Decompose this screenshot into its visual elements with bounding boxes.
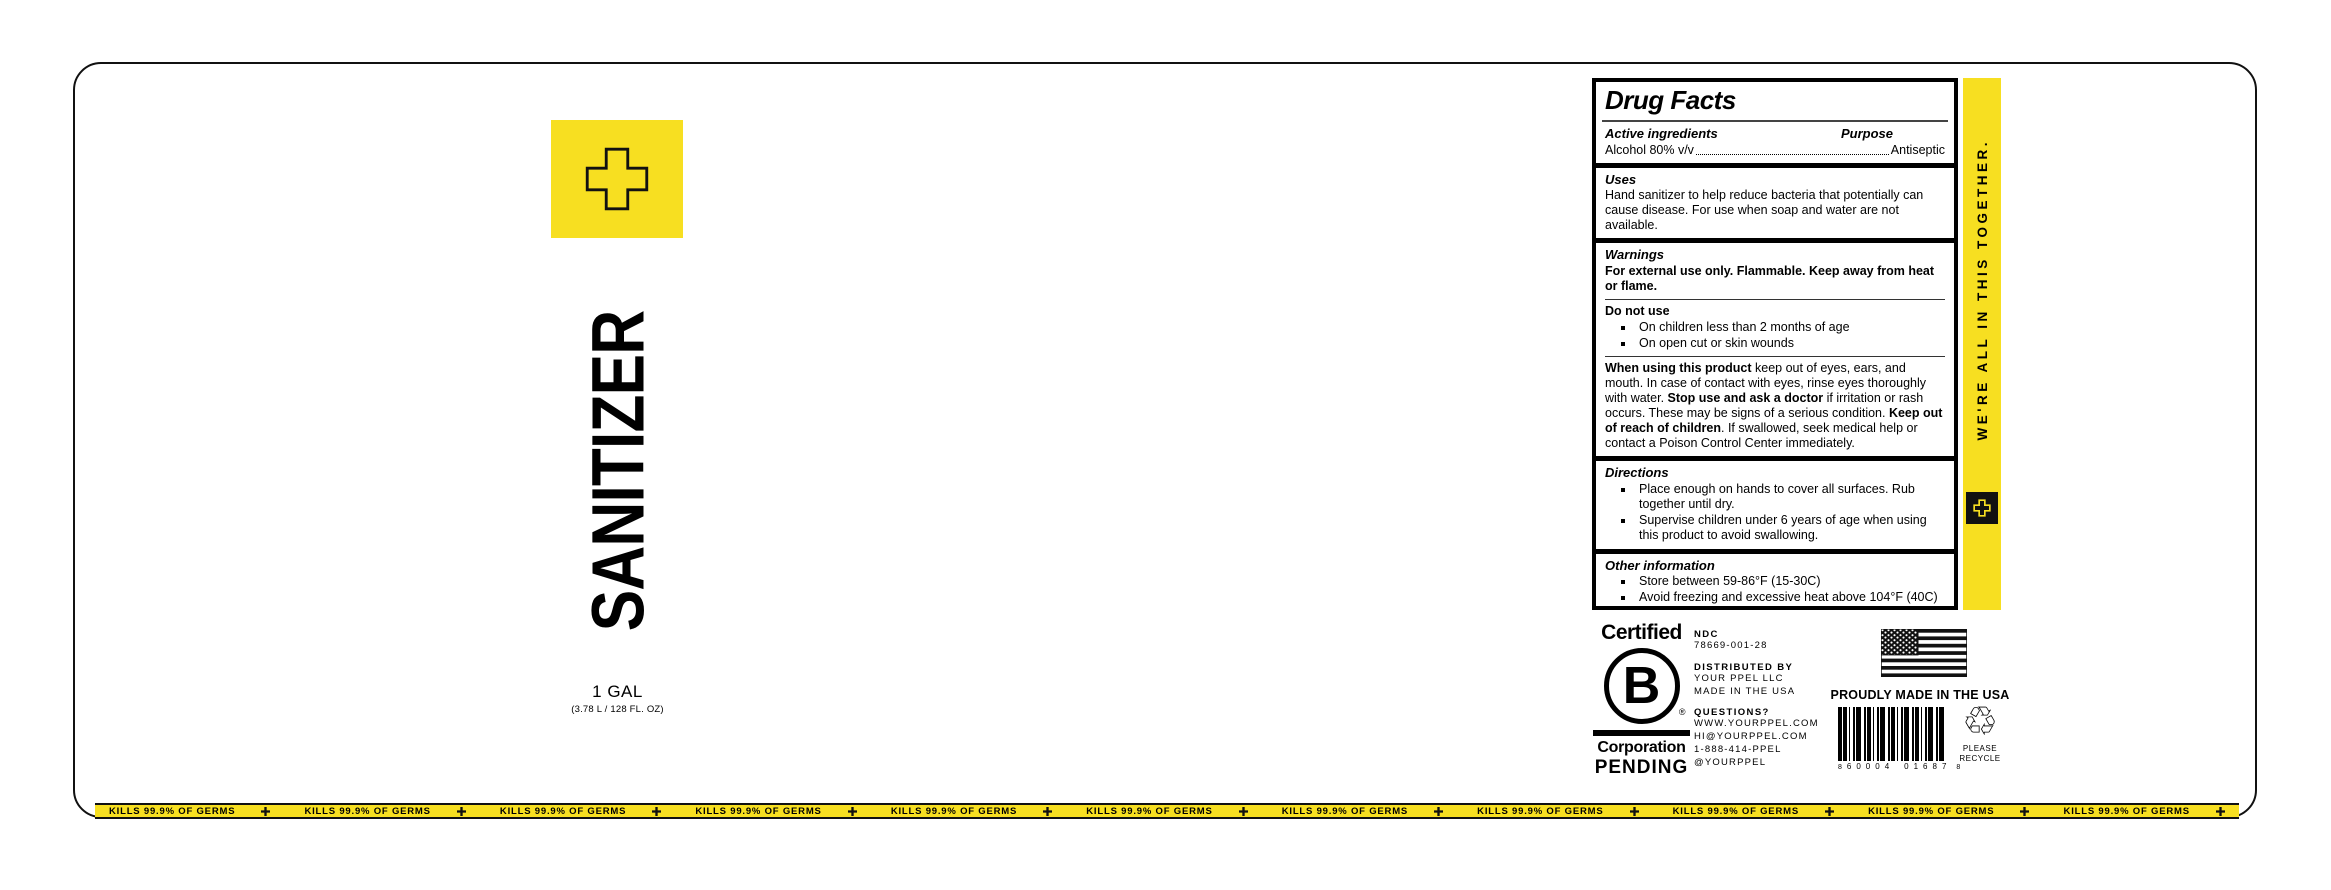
recycle-block: ♲ PLEASE RECYCLE: [1950, 702, 2010, 764]
size-volume: 1 GAL: [535, 682, 700, 702]
bcorp-b-letter: B: [1623, 660, 1661, 712]
list-item: On children less than 2 months of age: [1635, 320, 1945, 335]
medical-cross-icon: [579, 141, 655, 217]
plus-cross-icon: [261, 807, 270, 816]
when-using-text: When using this product keep out of eyes…: [1605, 361, 1945, 451]
plus-cross-icon: [1434, 807, 1443, 816]
barcode-group2: 01687: [1904, 762, 1951, 771]
size-info: 1 GAL (3.78 L / 128 FL. OZ): [535, 682, 700, 715]
germs-band-text: KILLS 99.9% OF GERMS: [891, 806, 1017, 817]
sanitizer-label: SANITIZER 1 GAL (3.78 L / 128 FL. OZ) Dr…: [0, 0, 2331, 890]
bcorp-pending-text: PENDING: [1593, 757, 1690, 779]
list-item: Store between 59-86°F (15-30C): [1635, 574, 1945, 589]
bcorp-bar: [1593, 730, 1690, 736]
bcorp-certified-text: Certified: [1593, 621, 1690, 645]
barcode-bars: [1838, 707, 1944, 761]
yellow-cross-badge: [551, 120, 683, 238]
germs-band-item: KILLS 99.9% OF GERMS: [1282, 806, 1443, 817]
germs-band-text: KILLS 99.9% OF GERMS: [1086, 806, 1212, 817]
ndc-label: NDC: [1694, 629, 1844, 640]
side-strip: WE'RE ALL IN THIS TOGETHER.: [1963, 78, 2001, 610]
directions-list: Place enough on hands to cover all surfa…: [1605, 482, 1945, 543]
list-item: HI@YOURPPEL.COM: [1694, 731, 1844, 744]
size-detail: (3.78 L / 128 FL. OZ): [535, 704, 700, 715]
uses-heading: Uses: [1605, 172, 1945, 188]
germs-band-text: KILLS 99.9% OF GERMS: [1282, 806, 1408, 817]
warnings-section: Warnings For external use only. Flammabl…: [1596, 238, 1954, 456]
drug-facts-title: Drug Facts: [1596, 82, 1954, 120]
germs-band-text: KILLS 99.9% OF GERMS: [109, 806, 235, 817]
germs-band-text: KILLS 99.9% OF GERMS: [500, 806, 626, 817]
bcorp-corporation-text: Corporation: [1593, 739, 1690, 757]
germs-band-text: KILLS 99.9% OF GERMS: [1477, 806, 1603, 817]
plus-cross-icon: [1630, 807, 1639, 816]
divider: [1605, 299, 1945, 300]
do-not-use-heading: Do not use: [1605, 304, 1945, 319]
germs-band-item: KILLS 99.9% OF GERMS: [1673, 806, 1834, 817]
plus-cross-icon: [848, 807, 857, 816]
directions-heading: Directions: [1605, 465, 1945, 481]
ndc-value: 78669-001-28: [1694, 640, 1844, 653]
dotted-leader: [1696, 154, 1889, 155]
active-ingredients-heading: Active ingredients: [1605, 126, 1718, 142]
active-ingredient-purpose: Antiseptic: [1891, 143, 1945, 158]
list-item: Place enough on hands to cover all surfa…: [1635, 482, 1945, 512]
do-not-use-list: On children less than 2 months of ageOn …: [1605, 320, 1945, 351]
other-information-section: Other information Store between 59-86°F …: [1596, 549, 1954, 610]
plus-cross-icon: [1043, 807, 1052, 816]
plus-cross-icon: [1239, 807, 1248, 816]
questions-label: QUESTIONS?: [1694, 707, 1844, 718]
bcorp-circle-b: B ®: [1604, 648, 1680, 724]
plus-cross-icon: [652, 807, 661, 816]
distributed-by-label: DISTRIBUTED BY: [1694, 662, 1844, 673]
strip-cross-badge: [1966, 492, 1998, 524]
germs-band-item: KILLS 99.9% OF GERMS: [304, 806, 465, 817]
germs-band-item: KILLS 99.9% OF GERMS: [1086, 806, 1247, 817]
list-item: Supervise children under 6 years of age …: [1635, 513, 1945, 543]
product-name-text: SANITIZER: [575, 310, 660, 631]
active-ingredients-section: Active ingredients Purpose Alcohol 80% v…: [1596, 122, 1954, 163]
active-ingredient-name: Alcohol 80% v/v: [1605, 143, 1694, 158]
questions-lines: WWW.YOURPPEL.COMHI@YOURPPEL.COM1-888-414…: [1694, 718, 1844, 769]
plus-cross-icon: [2020, 807, 2029, 816]
list-item: 1-888-414-PPEL: [1694, 744, 1844, 757]
germs-band-item: KILLS 99.9% OF GERMS: [695, 806, 856, 817]
germs-band-text: KILLS 99.9% OF GERMS: [1868, 806, 1994, 817]
germs-band: KILLS 99.9% OF GERMS KILLS 99.9% OF GERM…: [95, 803, 2239, 819]
plus-cross-icon: [457, 807, 466, 816]
directions-section: Directions Place enough on hands to cove…: [1596, 456, 1954, 549]
product-name: SANITIZER: [545, 288, 690, 653]
germs-band-item: KILLS 99.9% OF GERMS: [2064, 806, 2225, 817]
divider: [1605, 356, 1945, 357]
list-item: On open cut or skin wounds: [1635, 336, 1945, 351]
uses-section: Uses Hand sanitizer to help reduce bacte…: [1596, 163, 1954, 239]
germs-band-text: KILLS 99.9% OF GERMS: [695, 806, 821, 817]
drug-facts-panel: Drug Facts Active ingredients Purpose Al…: [1592, 78, 1958, 610]
list-item: YOUR PPEL LLC: [1694, 673, 1844, 686]
plus-cross-icon: [1825, 807, 1834, 816]
upc-barcode: 8 60004 01687 8: [1838, 707, 1944, 771]
recycle-icon: ♲: [1950, 702, 2010, 742]
germs-band-item: KILLS 99.9% OF GERMS: [1477, 806, 1638, 817]
germs-band-text: KILLS 99.9% OF GERMS: [304, 806, 430, 817]
us-flag-icon: [1881, 629, 1967, 677]
warnings-text: For external use only. Flammable. Keep a…: [1605, 264, 1945, 294]
list-item: Avoid freezing and excessive heat above …: [1635, 590, 1945, 605]
recycle-text-line1: PLEASE: [1950, 744, 2010, 754]
uses-text: Hand sanitizer to help reduce bacteria t…: [1605, 188, 1945, 233]
barcode-digits: 8 60004 01687 8: [1838, 762, 1944, 771]
barcode-group1: 60004: [1847, 762, 1894, 771]
germs-band-item: KILLS 99.9% OF GERMS: [500, 806, 661, 817]
barcode-left-digit: 8: [1838, 764, 1842, 771]
list-item: WWW.YOURPPEL.COM: [1694, 718, 1844, 731]
germs-band-item: KILLS 99.9% OF GERMS: [109, 806, 270, 817]
recycle-text-line2: RECYCLE: [1950, 754, 2010, 764]
germs-band-item: KILLS 99.9% OF GERMS: [1868, 806, 2029, 817]
barcode-right-digit: 8: [1956, 764, 1960, 771]
medical-cross-icon: [1972, 498, 1992, 518]
warnings-heading: Warnings: [1605, 247, 1945, 263]
bcorp-logo: Certified B ® Corporation PENDING: [1593, 621, 1690, 779]
other-information-heading: Other information: [1605, 558, 1945, 574]
germs-band-text: KILLS 99.9% OF GERMS: [1673, 806, 1799, 817]
list-item: @YOURPPEL: [1694, 757, 1844, 770]
germs-band-item: KILLS 99.9% OF GERMS: [891, 806, 1052, 817]
registered-mark: ®: [1679, 707, 1686, 717]
side-strip-text: WE'RE ALL IN THIS TOGETHER.: [1975, 139, 1990, 440]
plus-cross-icon: [2216, 807, 2225, 816]
germs-band-text: KILLS 99.9% OF GERMS: [2064, 806, 2190, 817]
other-information-list: Store between 59-86°F (15-30C)Avoid free…: [1605, 574, 1945, 605]
purpose-heading: Purpose: [1841, 126, 1893, 142]
